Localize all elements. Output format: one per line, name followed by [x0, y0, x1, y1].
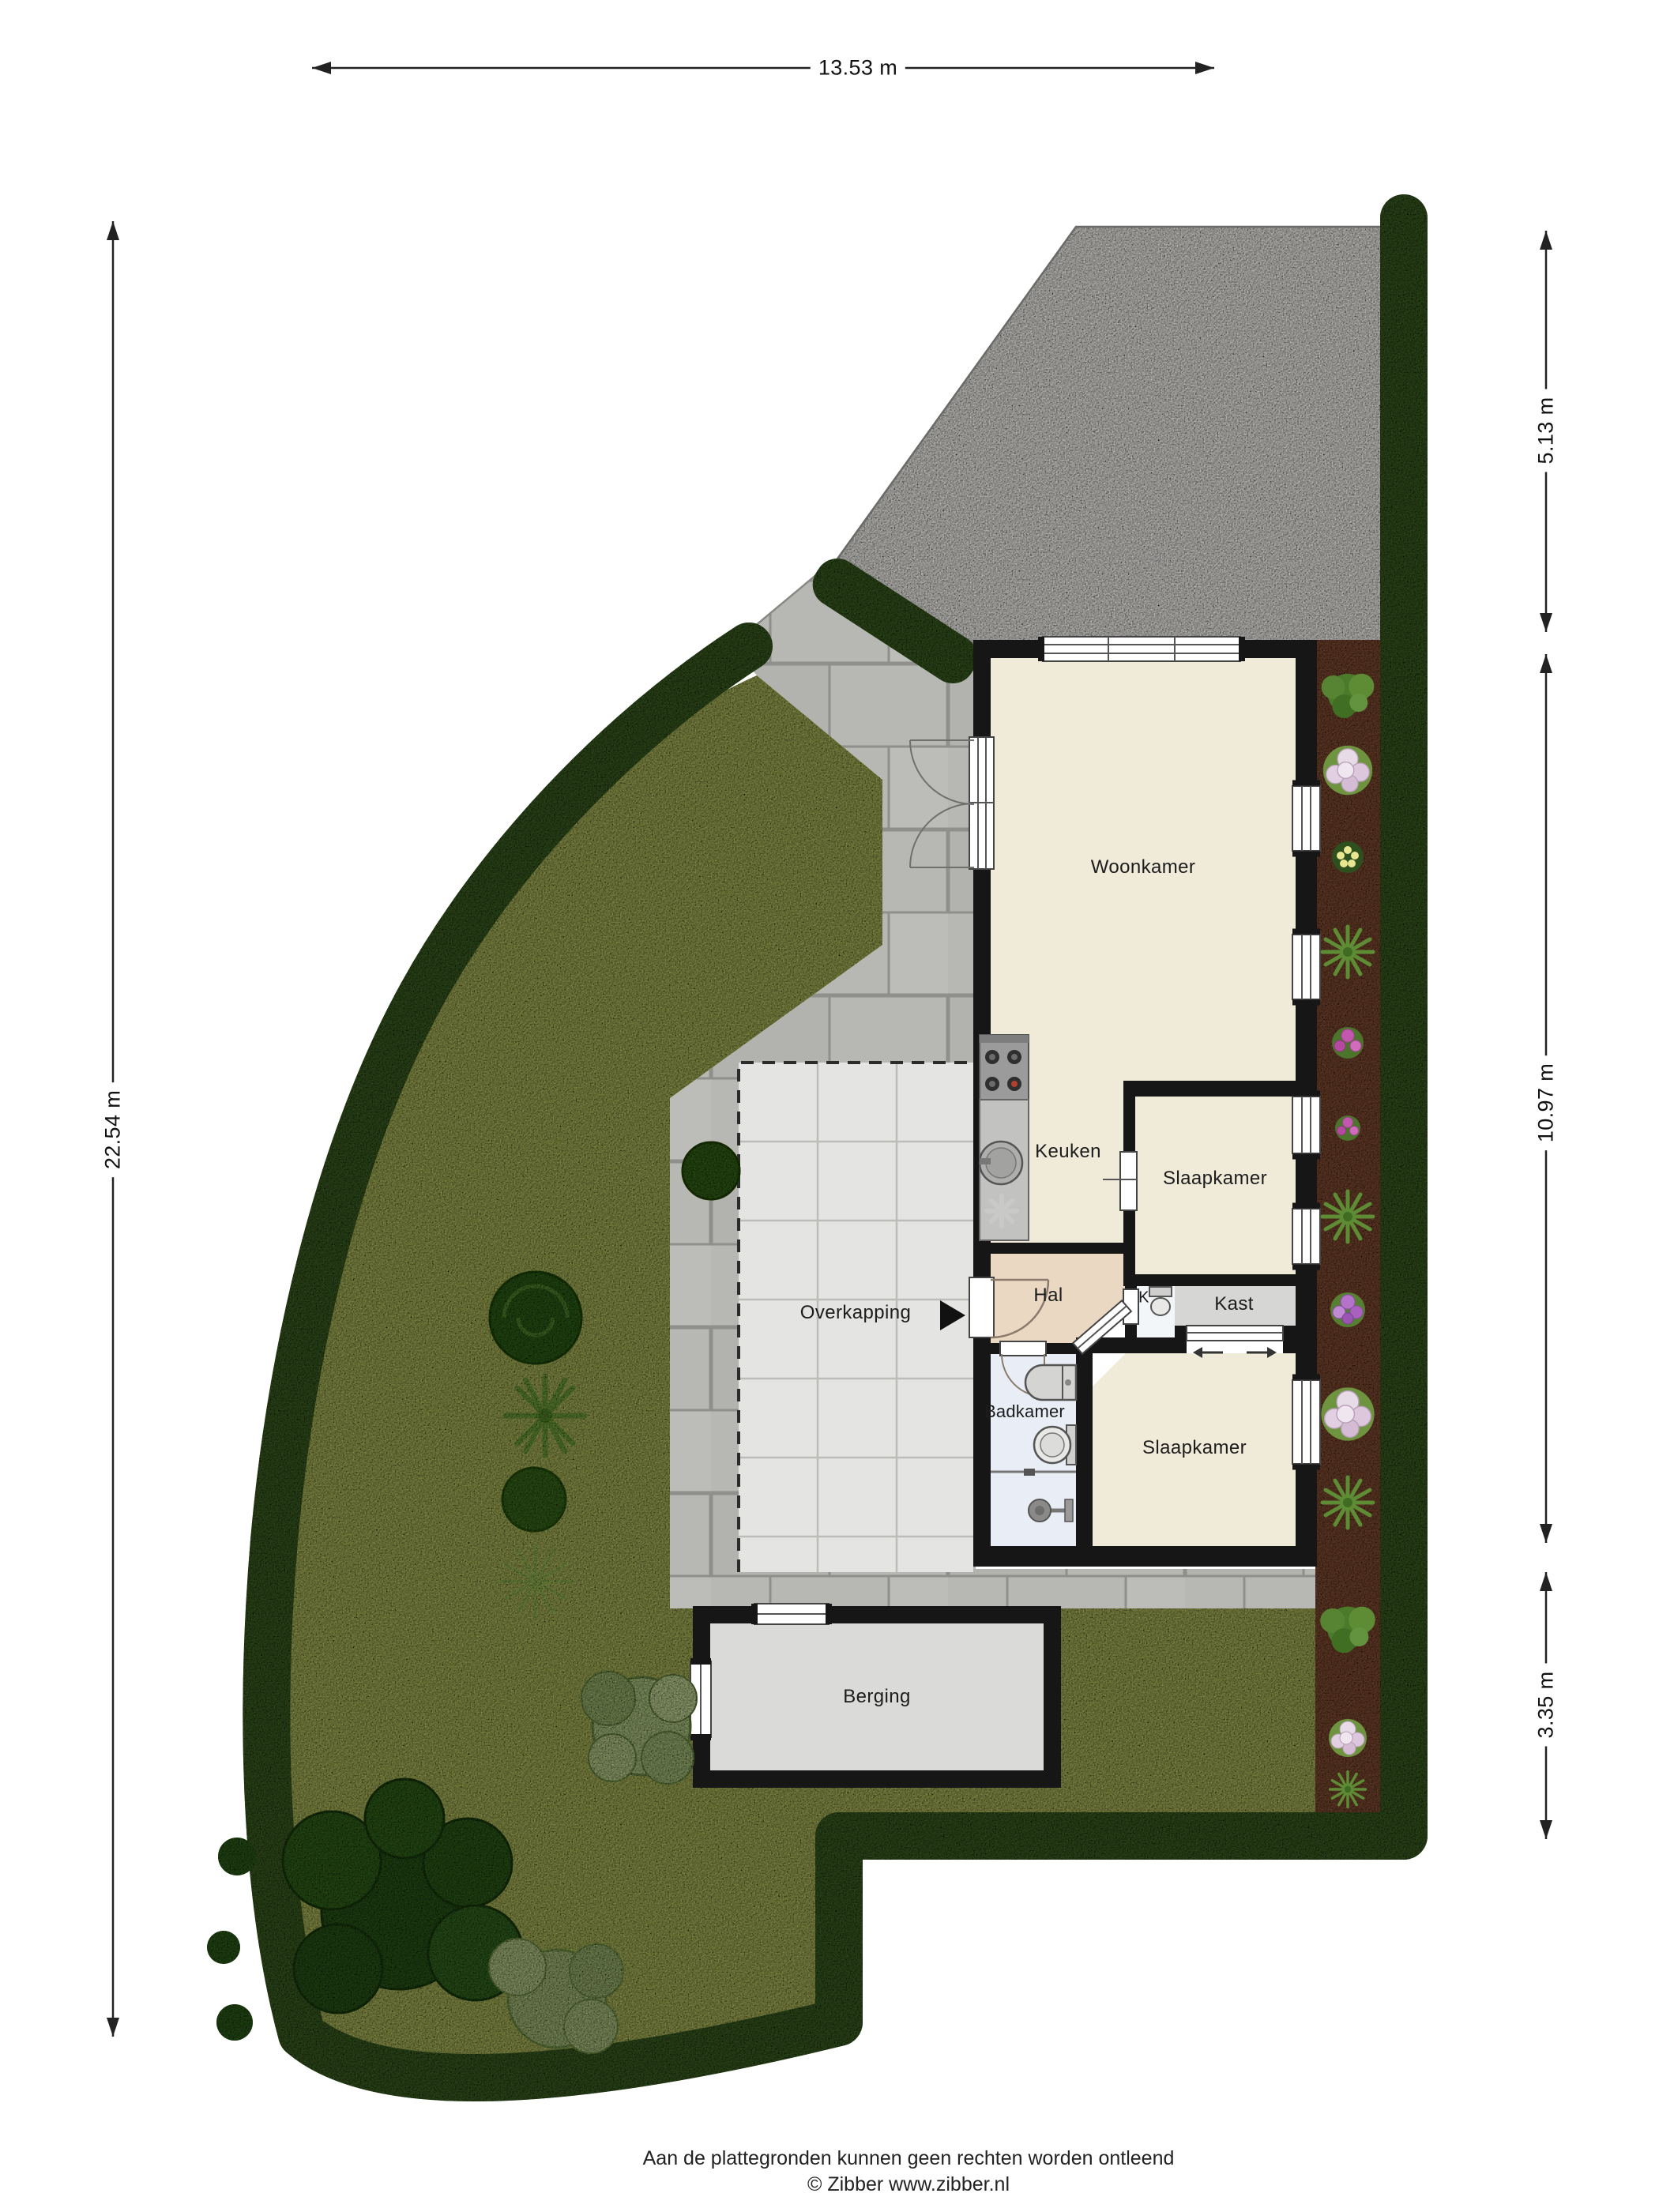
dimension-label-right-bottom: 3.35 m	[1533, 1664, 1559, 1747]
berging-door	[751, 1604, 832, 1624]
vent-icon	[987, 1196, 1017, 1226]
room-label-hal: Hal	[1033, 1285, 1063, 1307]
room-label-toilet-k: K	[1138, 1289, 1149, 1307]
room-label-badkamer: Badkamer	[984, 1401, 1065, 1422]
topiary-bush-icon	[490, 1272, 581, 1364]
room-label-overkapping: Overkapping	[800, 1302, 911, 1324]
ball-bush-icon	[683, 1142, 739, 1199]
stove-icon	[980, 1035, 1029, 1100]
kitchen-counter	[980, 1100, 1029, 1240]
toilet-icon	[1149, 1287, 1172, 1315]
dimension-label-height: 22.54 m	[100, 1082, 126, 1177]
dimension-label-width: 13.53 m	[811, 55, 905, 81]
kast-sliding-door	[1187, 1326, 1283, 1358]
footer-line-2: © Zibber www.zibber.nl	[643, 2172, 1175, 2198]
palm-plant-icon	[506, 1376, 585, 1455]
footer-line-1: Aan de plattegronden kunnen geen rechten…	[643, 2146, 1175, 2172]
footer-disclaimer: Aan de plattegronden kunnen geen rechten…	[643, 2146, 1175, 2198]
variegated-shrub-icon	[581, 1672, 697, 1784]
toilet2-icon	[1034, 1425, 1076, 1465]
floorplan-graphic	[0, 0, 1659, 2212]
room-label-slaapkamer-1: Slaapkamer	[1163, 1168, 1267, 1190]
bathtub-icon	[1025, 1365, 1076, 1400]
room-label-slaapkamer-2: Slaapkamer	[1142, 1437, 1247, 1459]
dimension-label-right-middle: 10.97 m	[1533, 1055, 1559, 1150]
sink-icon	[980, 1142, 1022, 1184]
dimension-label-right-top: 5.13 m	[1533, 389, 1559, 472]
round-bush-icon	[502, 1468, 566, 1531]
room-label-keuken: Keuken	[1035, 1141, 1101, 1163]
divider-post	[1024, 1469, 1035, 1476]
room-label-kast: Kast	[1214, 1293, 1254, 1315]
floorplan-canvas: Woonkamer Keuken Slaapkamer Hal K Kast B…	[0, 0, 1659, 2212]
woonkamer-top-window	[1038, 637, 1245, 661]
room-label-berging: Berging	[843, 1686, 911, 1708]
room-label-woonkamer: Woonkamer	[1091, 856, 1196, 878]
